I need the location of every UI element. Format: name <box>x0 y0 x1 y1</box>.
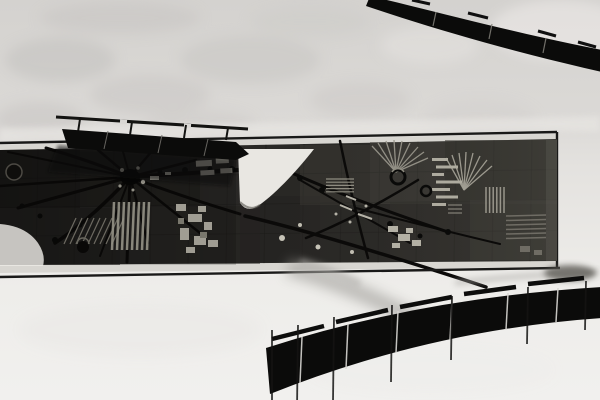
light-dash <box>436 181 462 184</box>
rib-line <box>506 215 546 216</box>
light-dash <box>432 158 448 161</box>
rib-line <box>506 229 546 230</box>
light-dash <box>432 188 450 191</box>
mural-frieze <box>0 132 557 287</box>
light-dash <box>432 173 444 176</box>
facade-photograph <box>0 0 600 400</box>
balustrade-post <box>585 281 586 330</box>
rib-line <box>506 220 546 221</box>
rib-line <box>506 224 546 225</box>
light-dash <box>436 166 458 169</box>
balustrade-post <box>297 325 298 400</box>
rib-line <box>506 238 546 239</box>
balustrade-post <box>391 305 392 382</box>
balustrade-post <box>451 296 452 360</box>
light-dash <box>436 196 458 199</box>
photo-canvas <box>0 0 600 400</box>
rib-line <box>506 233 546 234</box>
light-dash <box>432 203 446 206</box>
balustrade-post <box>527 287 528 344</box>
mural-left-shade <box>0 150 236 265</box>
balustrade-post <box>333 317 334 400</box>
